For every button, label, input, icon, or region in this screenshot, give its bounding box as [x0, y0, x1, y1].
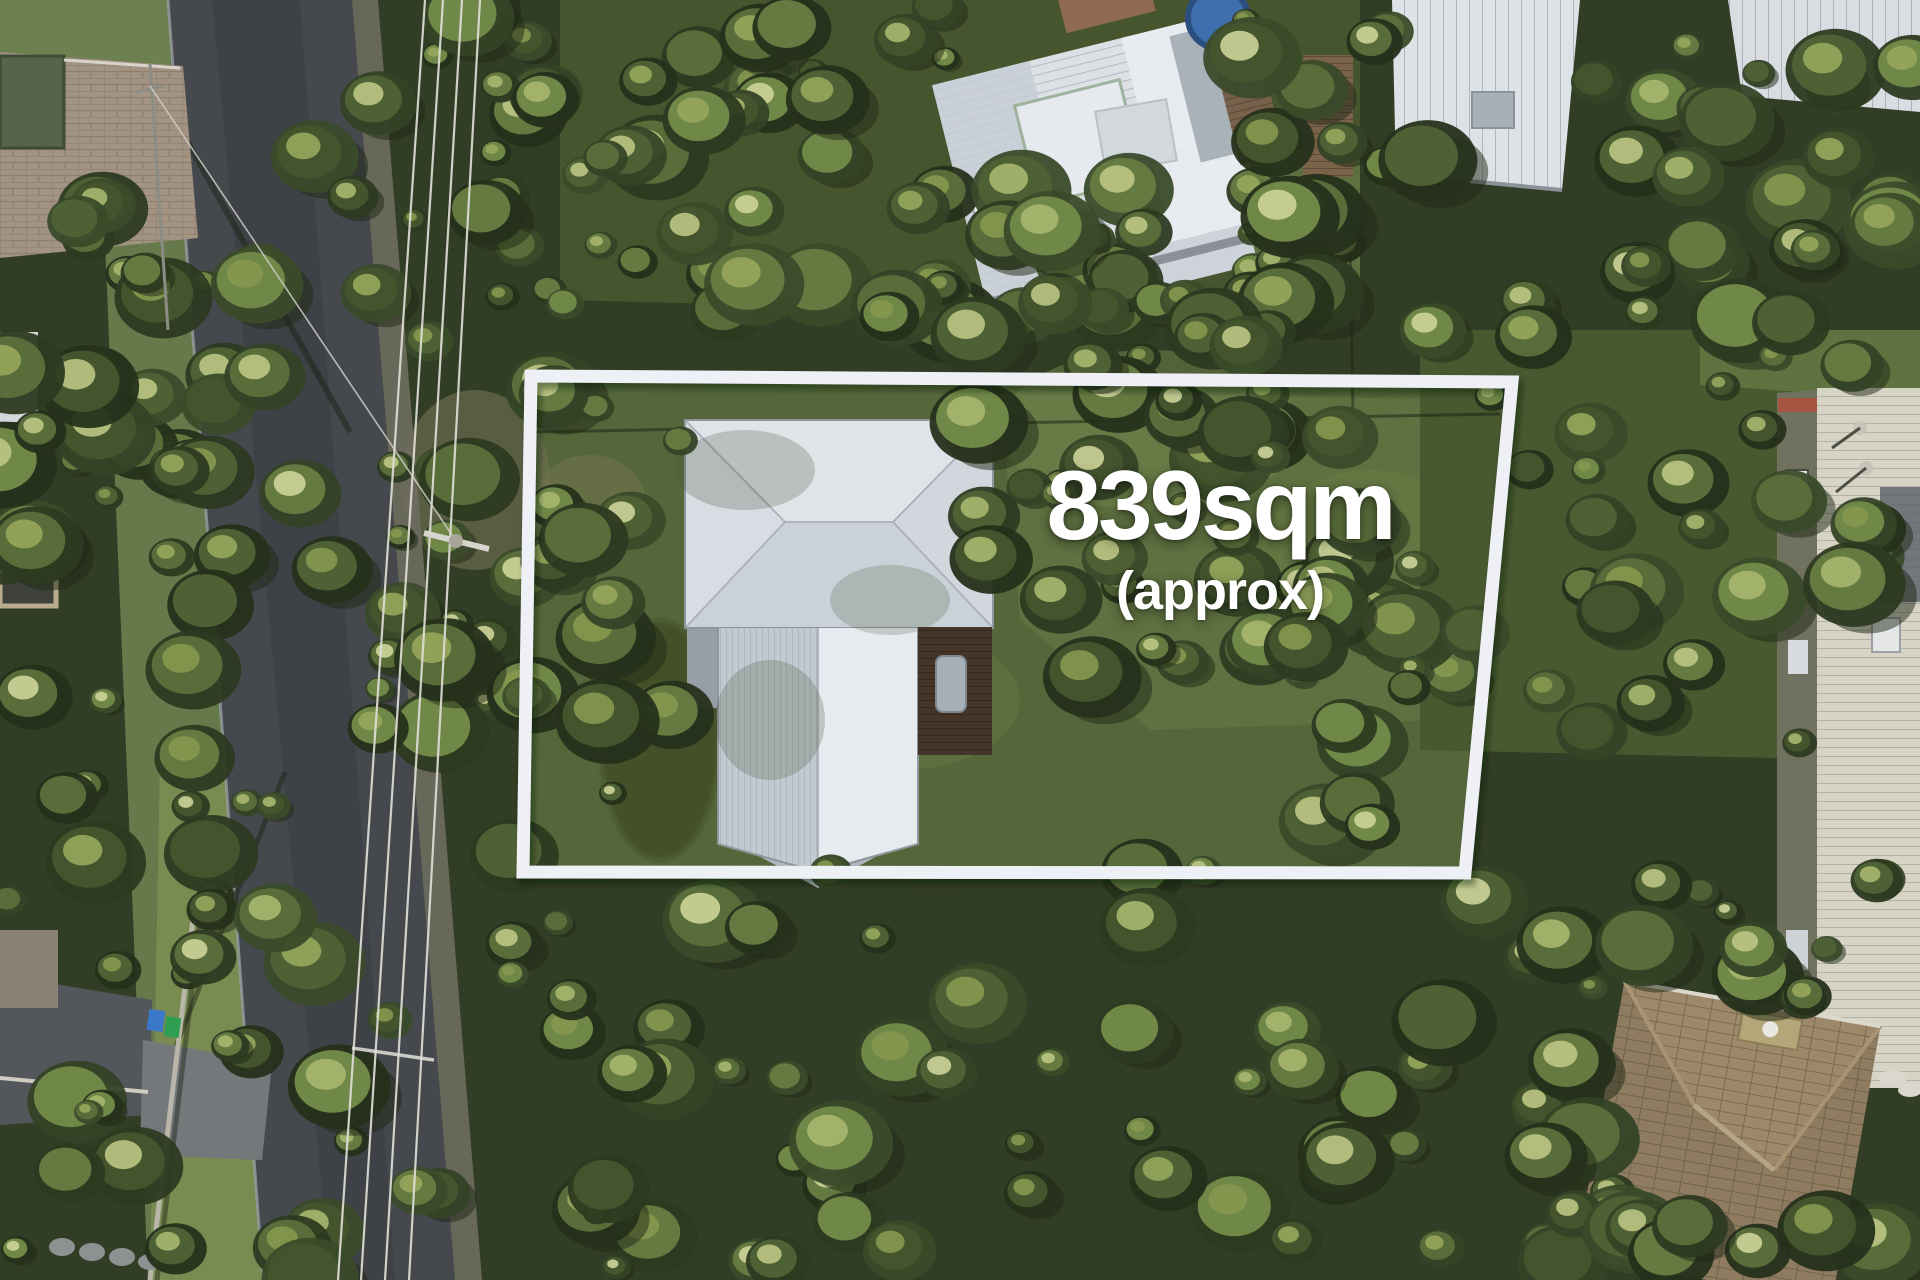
aerial-scene [0, 0, 1920, 1280]
tree-blob [161, 454, 184, 472]
tree [547, 289, 584, 320]
tree-blob [286, 133, 320, 160]
tree [149, 538, 195, 576]
tree-blob [870, 300, 893, 318]
tree-blob [555, 986, 575, 1001]
tree-blob [1011, 1135, 1025, 1146]
tree-blob [898, 191, 923, 210]
tree [146, 631, 242, 710]
tree-blob [182, 939, 208, 959]
tree-blob [1398, 985, 1476, 1049]
tree-blob [885, 23, 910, 42]
tree-blob [6, 520, 43, 549]
tree-blob [1642, 869, 1666, 888]
tree-blob [1221, 524, 1239, 538]
tree-blob [1374, 603, 1415, 635]
tree [401, 209, 429, 232]
tree [1752, 291, 1830, 355]
tree-blob [1246, 119, 1279, 144]
tree [916, 1048, 978, 1099]
tree-blob [157, 545, 175, 559]
tree [1213, 518, 1259, 556]
tree-blob [227, 260, 263, 288]
tree-blob [1041, 1053, 1054, 1063]
tree [1203, 17, 1301, 98]
tree-blob [549, 291, 577, 314]
tree-blob [629, 66, 652, 84]
tree [389, 1167, 448, 1215]
tree [1495, 305, 1572, 369]
tree-blob [866, 928, 880, 939]
tree-blob [1860, 866, 1881, 882]
tree-blob [590, 236, 603, 246]
tree [663, 427, 698, 456]
tree [1018, 273, 1092, 334]
tree-blob [1143, 638, 1159, 650]
tree [950, 525, 1033, 594]
tree-blob [545, 912, 567, 930]
tree-blob [1677, 38, 1690, 48]
tree-shadow-on-roof [830, 565, 950, 635]
roof-skylight [1472, 92, 1514, 128]
tree-blob [376, 644, 394, 658]
tree-blob [1009, 471, 1043, 499]
tree-blob [168, 736, 200, 761]
tree [348, 703, 409, 753]
tree-blob [1300, 584, 1333, 609]
wing-east-slope [818, 628, 918, 872]
tree-blob [306, 548, 338, 573]
tree-blob [263, 797, 276, 807]
tree-blob [573, 1160, 633, 1210]
tree-blob [1639, 80, 1669, 103]
tree-blob [1577, 461, 1590, 471]
tree-blob [336, 183, 356, 199]
tree-blob [1316, 416, 1346, 439]
tree-blob [1354, 812, 1376, 829]
tree [1671, 33, 1705, 61]
tree-blob [1047, 485, 1061, 496]
tree-blob [1632, 302, 1648, 314]
tree [368, 1002, 413, 1039]
tree-blob [1574, 63, 1613, 95]
tree [1782, 728, 1817, 757]
tree-blob [384, 457, 399, 469]
spa-cover [936, 656, 966, 712]
tree-blob [195, 896, 215, 911]
tree [860, 292, 920, 341]
tree-blob [1100, 165, 1135, 192]
tree-blob [607, 1259, 618, 1268]
tree-blob [502, 966, 515, 976]
tree-blob [947, 396, 986, 426]
tree-blob [1278, 1226, 1299, 1242]
tree-blob [876, 1231, 905, 1253]
terracotta-edge [1778, 398, 1818, 412]
tree-blob [1034, 577, 1066, 602]
tree-blob [722, 257, 761, 287]
green-roof-shed [0, 56, 64, 148]
tree-blob [1732, 931, 1758, 951]
tree-blob [1278, 1049, 1307, 1072]
tree-blob [306, 1059, 346, 1090]
tree [583, 140, 627, 177]
tree-blob [1060, 650, 1099, 680]
tree-blob [620, 248, 650, 272]
tree-blob [927, 1056, 951, 1075]
tree-blob [574, 693, 615, 725]
tree [260, 460, 342, 528]
tree-blob [1788, 733, 1802, 744]
tree-blob [63, 835, 102, 866]
tree [1124, 1116, 1161, 1146]
tree-blob [1657, 1199, 1713, 1245]
tree [497, 962, 529, 988]
tree [704, 243, 804, 326]
tree [539, 503, 629, 577]
tree [512, 72, 579, 128]
tree-blob [1340, 1071, 1396, 1117]
tree-blob [801, 77, 834, 102]
tree-blob [399, 1175, 422, 1193]
tree [929, 963, 1027, 1044]
tree-blob [665, 429, 691, 450]
tree-blob [757, 1245, 782, 1264]
window [1788, 640, 1808, 674]
tree-blob [524, 82, 550, 102]
tree-blob [1794, 1204, 1832, 1234]
tree [547, 979, 597, 1021]
tree-blob [818, 1196, 872, 1240]
tree-blob [1729, 571, 1766, 600]
tree [34, 1144, 105, 1202]
tree [480, 140, 512, 166]
tree [1554, 403, 1628, 464]
tree-blob [729, 905, 778, 945]
tree-shadow-on-roof [715, 660, 825, 780]
tree [1300, 1122, 1394, 1200]
tree-blob [1021, 204, 1059, 234]
tree-blob [1543, 1041, 1577, 1068]
tree-blob [248, 895, 281, 920]
tree-blob [593, 585, 618, 604]
tree [568, 1155, 650, 1223]
tree-blob [237, 794, 250, 804]
tree [1631, 861, 1692, 912]
tree-blob [1602, 911, 1674, 971]
tree [887, 182, 950, 234]
tree-blob [735, 195, 758, 213]
tree-blob [1174, 497, 1188, 508]
tree-blob [1764, 174, 1805, 206]
tree-blob [156, 1232, 180, 1251]
tree [224, 343, 305, 410]
tree-blob [1792, 983, 1811, 998]
tree-blob [1184, 321, 1207, 339]
tree [47, 196, 109, 247]
tree-blob [23, 418, 43, 434]
tree [1621, 246, 1671, 287]
tree [164, 815, 258, 893]
tree [1417, 1229, 1464, 1268]
tree-blob [947, 310, 985, 339]
tree [46, 821, 147, 904]
tree-blob [170, 820, 240, 877]
blue-wheelie-bin [147, 1009, 166, 1032]
tree-blob [961, 497, 989, 519]
tree-blob [495, 929, 517, 946]
tree-blob [1411, 313, 1437, 333]
tree [863, 1220, 937, 1280]
tree-blob [428, 47, 440, 57]
tree-blob [1532, 677, 1552, 693]
tree [1571, 456, 1605, 484]
tree-blob [610, 1055, 637, 1076]
tree-blob [1143, 1157, 1174, 1181]
tree-blob [989, 164, 1028, 194]
tree [93, 485, 123, 510]
tree-blob [1385, 126, 1458, 186]
tree-blob [1584, 980, 1595, 989]
tree-blob [1747, 417, 1766, 432]
tree [1241, 176, 1340, 258]
tree [1346, 19, 1402, 66]
tree [597, 1045, 667, 1103]
tree [1784, 976, 1832, 1016]
tree-blob [604, 786, 615, 795]
tree-blob [103, 957, 121, 971]
tree [1391, 979, 1497, 1066]
tree-blob [99, 489, 111, 498]
tree [1020, 566, 1103, 634]
tree [377, 451, 415, 483]
tree-blob [1561, 706, 1613, 749]
tree-blob [353, 274, 381, 296]
tree-blob [274, 471, 306, 496]
tree-blob [1567, 413, 1596, 435]
tree-blob [79, 1104, 90, 1113]
tree [167, 569, 254, 641]
tree [95, 951, 142, 990]
tree-blob [40, 776, 86, 814]
tree-blob [425, 443, 500, 505]
tree-blob [1864, 204, 1895, 228]
tree-blob [207, 535, 237, 558]
tree-blob [1425, 1235, 1443, 1249]
tree-blob [1813, 938, 1836, 957]
tree-blob [1317, 1135, 1354, 1164]
tree [170, 930, 236, 985]
tree-blob [1390, 1132, 1419, 1156]
tree-blob [1509, 287, 1531, 304]
tree-blob [946, 977, 984, 1007]
tree [599, 782, 627, 805]
tree-blob [1391, 673, 1423, 699]
tree-blob [1628, 685, 1655, 706]
tree-blob [1101, 1004, 1158, 1051]
tree [405, 321, 454, 361]
tree-blob [492, 287, 505, 297]
tree [1786, 29, 1886, 112]
tree-blob [718, 1062, 731, 1072]
tree [36, 772, 98, 824]
tree [486, 283, 520, 311]
tree [1557, 702, 1628, 761]
tree-blob [1131, 1121, 1145, 1132]
tree-blob [39, 1148, 91, 1191]
tree-blob [1125, 217, 1147, 234]
tree-blob [646, 1009, 674, 1031]
tree-blob [872, 1031, 909, 1060]
tree [1664, 217, 1741, 281]
tree-blob [807, 1115, 848, 1147]
tree-blob [124, 255, 160, 285]
tree-blob [353, 82, 383, 105]
tree [154, 725, 235, 792]
tree-blob [1799, 237, 1818, 252]
tree [1571, 60, 1623, 103]
tree [1312, 699, 1378, 753]
tree-blob [391, 529, 402, 538]
tree-blob [105, 1140, 142, 1169]
tree-blob [1117, 901, 1154, 930]
tree-blob [1686, 515, 1704, 529]
tree [1648, 449, 1730, 517]
aerial-property-photo: 839sqm (approx) [0, 0, 1920, 1280]
tree [1706, 372, 1741, 401]
tree-blob [178, 796, 193, 808]
tree-blob [1757, 295, 1815, 342]
tree [619, 58, 677, 106]
tree-blob [1570, 498, 1617, 537]
tree [1302, 406, 1378, 469]
tree [1739, 410, 1787, 450]
tree [74, 1100, 103, 1124]
tree-blob [1278, 624, 1311, 650]
tree-blob [539, 492, 560, 509]
tree-blob [1239, 1072, 1252, 1082]
tree [234, 883, 317, 952]
green-wheelie-bin [164, 1016, 182, 1038]
tree [1129, 1146, 1208, 1211]
tree-blob [1356, 26, 1378, 43]
tree-blob [173, 574, 237, 627]
tree-blob [486, 144, 498, 154]
tree [1251, 441, 1290, 473]
tree-blob [1662, 461, 1694, 486]
tree-blob [1013, 1179, 1034, 1196]
tree-blob [670, 213, 700, 236]
tree-blob [452, 184, 510, 232]
tree [1652, 147, 1724, 207]
tree [663, 86, 746, 155]
tree-blob [1316, 703, 1364, 743]
tree-blob [1669, 221, 1726, 268]
tree [581, 576, 645, 629]
tree-blob [1815, 138, 1843, 160]
tree-blob [545, 508, 611, 563]
tree-blob [758, 0, 816, 48]
tree-blob [358, 712, 382, 731]
tree-blob [1842, 507, 1868, 527]
tree [14, 410, 66, 453]
tree-blob [1821, 556, 1861, 587]
tree-blob [1508, 316, 1538, 339]
tree-blob [1220, 31, 1259, 61]
tree-blob [1674, 648, 1698, 667]
tree-blob [1744, 62, 1768, 82]
tree-blob [8, 676, 39, 700]
tree-blob [1254, 276, 1292, 306]
tree-blob [1324, 493, 1385, 543]
tree-blob [7, 1241, 20, 1251]
tree [1720, 922, 1787, 977]
tree-blob [1074, 349, 1097, 367]
tree-blob [1402, 556, 1418, 568]
tree-blob [1736, 1233, 1762, 1253]
tree-blob [1756, 474, 1812, 520]
tree-blob [1266, 1012, 1292, 1032]
tree-blob [1222, 326, 1251, 348]
tree [1209, 316, 1282, 376]
tree [1388, 670, 1431, 705]
tree-blob [769, 1063, 800, 1088]
power-pole-top [449, 534, 463, 548]
tree [1100, 888, 1196, 967]
tree-blob [1582, 585, 1640, 633]
tree-blob [1609, 138, 1643, 164]
tree-blob [1665, 157, 1693, 179]
tree-blob [667, 30, 722, 76]
tree [1523, 670, 1575, 713]
tree [618, 245, 658, 278]
tree-blob [218, 1035, 233, 1047]
tree-blob [964, 537, 997, 562]
tree-blob [1533, 919, 1570, 948]
tree-blob [586, 142, 619, 169]
tree [860, 923, 896, 953]
tree-blob [1209, 556, 1243, 583]
garage-roof-edge [0, 930, 58, 1008]
tree-blob [1556, 1199, 1578, 1216]
tree-blob [1326, 129, 1346, 145]
tree-blob [1686, 88, 1756, 146]
tree-blob [677, 98, 709, 123]
tree-blob [1519, 1134, 1552, 1159]
tree [1036, 1048, 1070, 1076]
tree-blob [51, 199, 97, 237]
tree-blob [1073, 446, 1104, 470]
tree-blob [1522, 1090, 1546, 1109]
tree-blob [1887, 46, 1918, 70]
tree-blob [1031, 283, 1060, 306]
tree [1803, 128, 1876, 188]
tree [725, 187, 785, 236]
tree [1625, 296, 1666, 330]
tree [145, 1223, 207, 1274]
tree-blob [1258, 446, 1273, 458]
tree [150, 446, 209, 495]
tree [584, 232, 617, 259]
tree [1579, 976, 1608, 1000]
tree [1264, 612, 1349, 682]
tree-blob [1719, 904, 1730, 913]
tree-blob [1208, 1184, 1247, 1214]
tree-blob [1404, 661, 1417, 671]
tree [1344, 804, 1400, 850]
tree-blob [1630, 252, 1650, 267]
tree-blob [238, 355, 270, 380]
